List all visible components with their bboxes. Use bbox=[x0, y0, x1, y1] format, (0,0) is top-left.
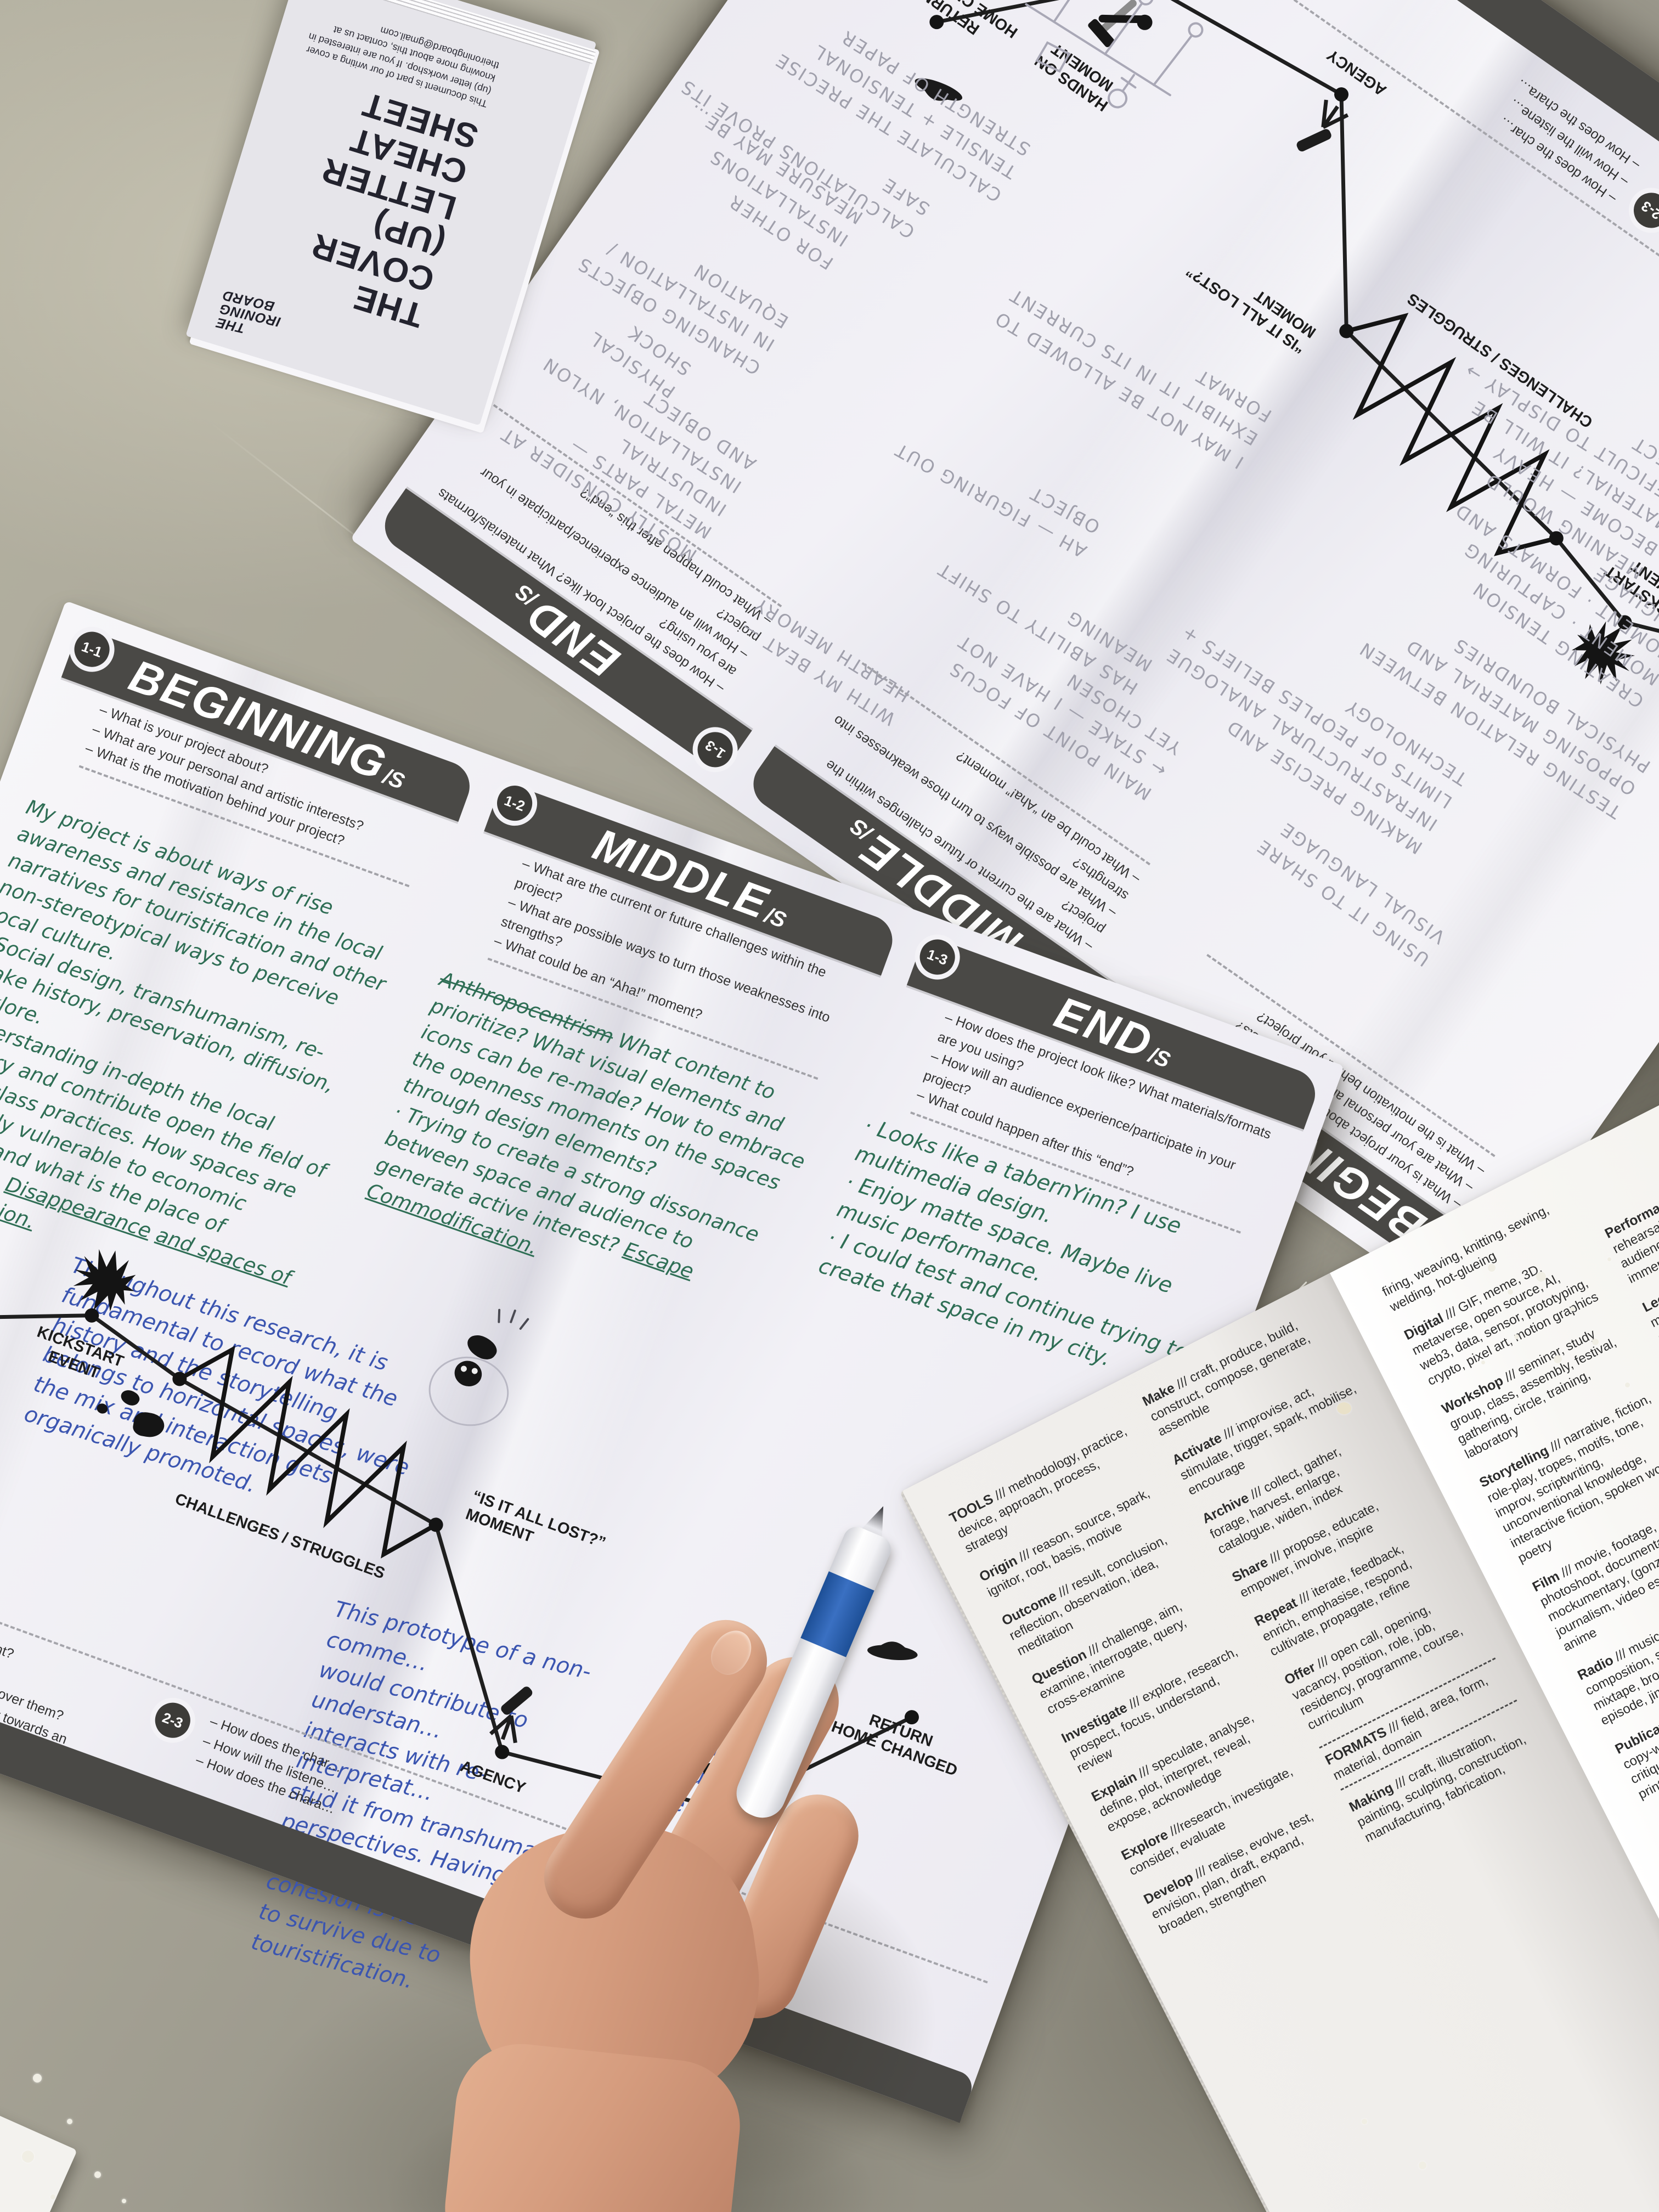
paper-scrap bbox=[0, 2101, 77, 2212]
paint-splatter bbox=[1554, 1355, 1562, 1363]
paint-splatter bbox=[1625, 1383, 1630, 1387]
fingernail bbox=[704, 1623, 759, 1681]
panel-badge: 2-3 bbox=[1620, 179, 1659, 241]
paint-splatter bbox=[1607, 1257, 1611, 1261]
paint-splatter bbox=[1508, 1289, 1513, 1295]
paint-splatter bbox=[67, 2119, 72, 2124]
paint-splatter bbox=[1362, 2119, 1367, 2124]
photo-scene: 1-1 BEGINNING /S – What is your project … bbox=[0, 0, 1659, 2212]
paint-splatter bbox=[50, 2194, 55, 2199]
paint-splatter bbox=[22, 2151, 34, 2163]
paint-splatter bbox=[1419, 2162, 1426, 2169]
paint-splatter bbox=[1592, 1339, 1599, 1345]
paint-splatter bbox=[1481, 1361, 1485, 1364]
paint-splatter bbox=[1536, 1272, 1546, 1282]
crumb bbox=[1337, 1402, 1351, 1414]
paint-splatter bbox=[1570, 1307, 1575, 1311]
star-icon bbox=[64, 1240, 145, 1322]
paint-splatter bbox=[33, 2074, 42, 2083]
paint-splatter bbox=[122, 2199, 126, 2203]
ufo-icon bbox=[867, 1639, 919, 1662]
paint-splatter bbox=[94, 2171, 101, 2178]
paint-splatter bbox=[1514, 1334, 1519, 1339]
panel-badge: 2-3 bbox=[144, 1691, 201, 1749]
paint-splatter bbox=[1488, 1264, 1496, 1272]
